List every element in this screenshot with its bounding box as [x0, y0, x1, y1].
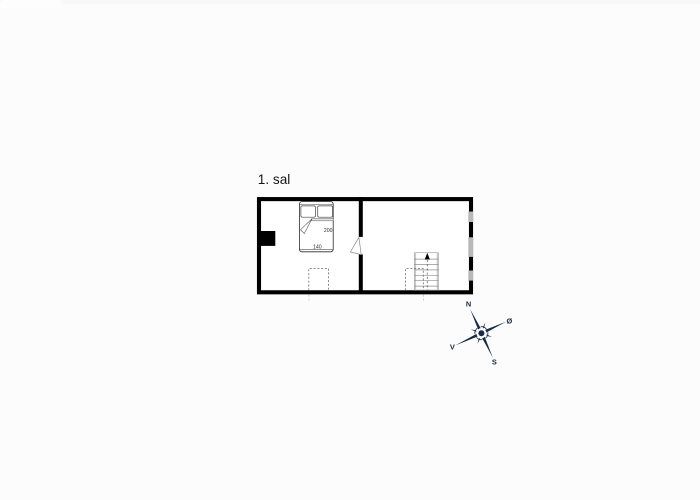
svg-text:200: 200: [324, 228, 333, 234]
svg-text:1. sal: 1. sal: [258, 172, 291, 187]
svg-text:S: S: [492, 357, 497, 366]
svg-text:Ø: Ø: [507, 317, 513, 326]
svg-text:V: V: [450, 343, 455, 352]
svg-text:N: N: [466, 300, 471, 309]
svg-text:140: 140: [313, 245, 322, 251]
